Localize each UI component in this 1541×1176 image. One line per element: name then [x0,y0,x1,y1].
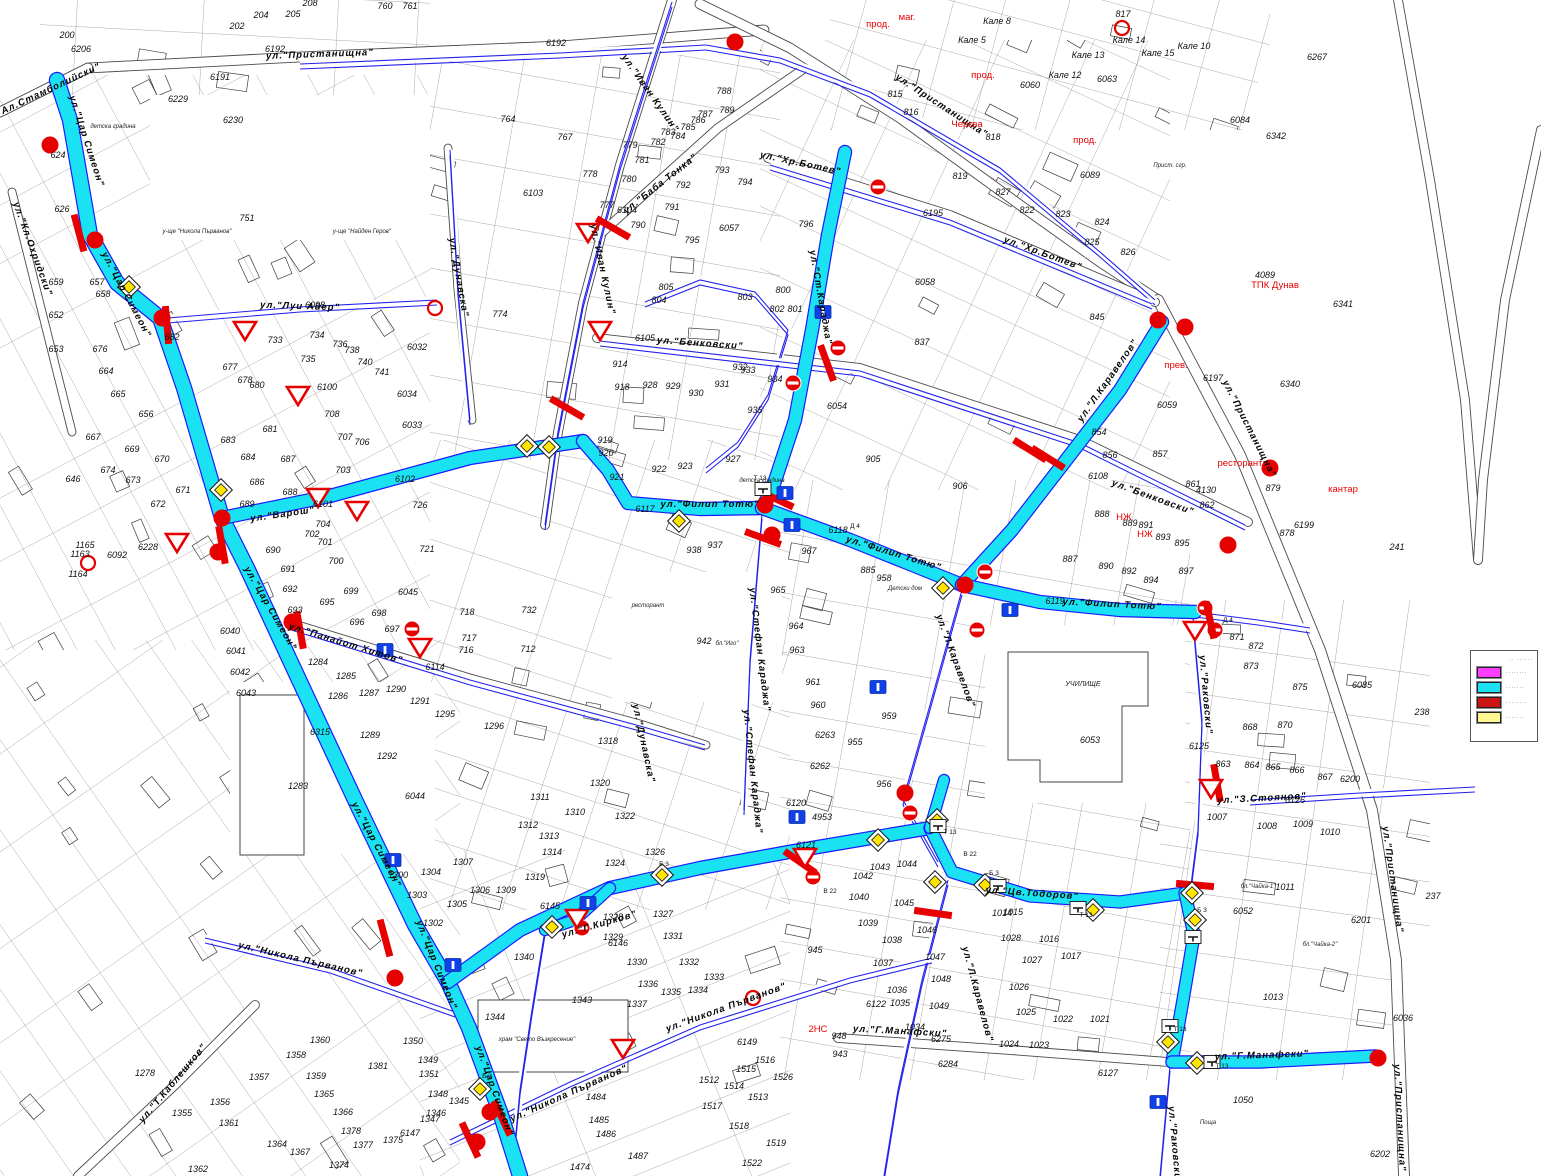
parcel-number: 873 [1243,661,1258,671]
parcel-number: 1367 [290,1147,311,1157]
red-annotation: 2НС [808,1024,827,1035]
arena-building [240,695,304,855]
parcel-number: 696 [349,617,364,627]
building-outline [424,1139,446,1162]
parcel-number: 6043 [236,688,256,698]
parcel-number: 1345 [449,1096,470,1106]
red-annotation: кантар [1328,484,1358,495]
parcel-number: 6063 [1097,74,1117,84]
legend-item: ········ [1477,697,1533,708]
parcel-number: 1349 [418,1055,438,1065]
building-outline [1043,152,1078,181]
building-outline [745,946,780,973]
parcel-number: 942 [696,636,711,646]
parcel-number: 684 [240,452,255,462]
parcel-number: 700 [328,556,343,566]
parcel-number: 708 [324,409,339,419]
parcel-number: 690 [265,545,280,555]
parcel-number: Кале 13 [1072,50,1105,60]
parcel-number: 6267 [1307,52,1328,62]
parcel-number: 857 [1152,449,1168,459]
parcel-number: 933 [740,365,755,375]
legend-item: ········ [1477,667,1533,678]
info-sign [789,811,805,824]
parcel-number: 864 [1244,760,1259,770]
parcel-number: 704 [315,519,330,529]
parcel-number: 6230 [223,115,243,125]
yield-sign [234,322,256,340]
parcel-number: 825 [1084,237,1100,247]
red-annotation: прод. [866,19,890,30]
parcel-number: 1347 [420,1114,441,1124]
parcel-number: 920 [598,448,613,458]
parcel-number: 701 [317,537,332,547]
info-sign [1002,604,1018,617]
parcel-number: 937 [707,540,723,550]
street-label: ул."Раковски" [1165,1105,1183,1176]
parcel-number: 671 [175,485,190,495]
parcel-number: 667 [85,432,101,442]
parcel-number: 1305 [447,899,468,909]
parcel-number: 624 [50,150,65,160]
parcel-number: 1324 [605,858,625,868]
parcel-number: 938 [686,545,701,555]
parcel-number: 6032 [407,342,427,352]
parcel-number: 1007 [1207,812,1228,822]
parcel-number: 1519 [766,1138,786,1148]
yield-sign [287,387,309,405]
parcel-number: 6199 [1294,520,1314,530]
parcel-number: 780 [621,174,636,184]
parcel-number: 6127 [1098,1068,1119,1078]
parcel-number: 657 [89,277,105,287]
parcel-number: 929 [665,381,680,391]
parcel-number: 905 [865,454,881,464]
parcel-number: 777 [599,200,615,210]
parcel-number: 1044 [897,859,917,869]
parcel-number: 890 [1098,561,1113,571]
building-outline [492,977,514,1000]
building-label: у-ще "Никола Първанов" [162,229,233,235]
parcel-number: 1320 [590,778,610,788]
parcel-number: 1514 [724,1081,744,1091]
parcel-number: 854 [1091,427,1106,437]
parcel-number: 779 [622,140,637,150]
parcel-number: 1015 [1003,907,1024,917]
parcel-number: 677 [222,362,238,372]
building-outline [62,827,78,844]
parcel-number: 703 [335,465,350,475]
parcel-number: 1286 [328,691,348,701]
parcel-number: 6118 [828,525,847,535]
parcel-number: 800 [775,285,790,295]
no-entry-sign [870,179,886,195]
parcel-number: 6197 [1203,373,1224,383]
highlighted-street [962,322,1162,585]
building-outline [193,704,209,721]
legend-item: ······· [1477,712,1533,723]
parcel-number: 1285 [336,671,357,681]
parcel-number: 6229 [168,94,188,104]
building-outline [602,67,620,78]
parcel-number: 1334 [688,985,708,995]
sign-code-label: Т 13 [1173,1026,1186,1033]
parcel-number: 934 [767,374,782,384]
parcel-number: 1047 [925,952,946,962]
parcel-number: 6202 [1370,1149,1390,1159]
parcel-number: Кале 10 [1178,41,1211,51]
parcel-number: 1318 [598,736,618,746]
parcel-number: 208 [301,0,317,8]
parcel-number: 914 [612,359,627,369]
parcel-number: 6114 [425,662,444,672]
parcel-number: 965 [770,585,786,595]
parcel-number: 1026 [1009,982,1029,992]
parcel-number: 790 [630,220,645,230]
no-entry-sign [404,621,420,637]
red-annotation: ресторант [1217,458,1263,469]
parcel-number: 930 [688,388,703,398]
parcel-number: 782 [650,137,665,147]
legend-swatch [1477,667,1501,678]
parcel-number: 1314 [542,847,562,857]
building-outline [806,790,833,811]
parcel-number: 673 [125,475,140,485]
building-outline [514,721,546,740]
parcel-number: 204 [252,10,268,20]
street-label: ул."Ал.Стамболийски" [0,61,103,127]
parcel-number: 1330 [627,957,647,967]
yield-sign [409,639,431,657]
parcel-number: 787 [697,109,713,119]
street-label: ул."Дунавска" [446,236,471,318]
building-outline [295,466,316,488]
parcel-number: 1025 [1016,1007,1037,1017]
junction-sign [1185,931,1201,944]
parcel-number: 689 [239,499,254,509]
red-annotation: прод. [971,70,995,81]
parcel-number: 6191 [210,72,230,82]
parcel-number: 665 [110,389,126,399]
legend-label: ········ [1506,700,1527,706]
building-outline [604,789,629,808]
parcel-number: 862 [1199,500,1214,510]
parcel-number: 6054 [827,401,847,411]
parcel-number: 6103 [523,188,543,198]
parcel-number: 699 [343,586,358,596]
building-label: детска градина [739,478,785,484]
parcel-number: 801 [787,304,802,314]
building-outline [271,257,292,279]
parcel-number: 1022 [1053,1014,1073,1024]
parcel-number: 726 [412,500,427,510]
yield-sign [166,534,188,552]
parcel-number: 778 [582,169,597,179]
parcel-number: 1284 [308,657,328,667]
parcel-number: 6105 [635,333,656,343]
parcel-number: 698 [371,608,386,618]
red-annotation: НЖ [1137,529,1153,540]
parcel-number: 760 [377,1,392,11]
parcel-number: 818 [985,132,1000,142]
red-marker-dot [1150,312,1167,329]
parcel-number: 796 [798,219,813,229]
parcel-number: 781 [634,155,649,165]
parcel-number: 1336 [638,979,658,989]
building-outline [512,668,530,686]
parcel-number: 1295 [435,709,456,719]
red-annotation: Черква [951,119,983,130]
parcel-number: 1291 [410,696,430,706]
parcel-number: 626 [54,204,69,214]
building-outline [670,257,694,274]
street-label: ул."Никола Първанов" [236,940,364,980]
sign-code-label: Б 3 [1197,907,1207,914]
parcel-number: 1344 [485,1012,505,1022]
sign-code-label: Т 13 [1079,912,1092,919]
parcel-number: 6042 [230,667,250,677]
parcel-number: 202 [228,21,244,31]
road-closed-bar [1012,437,1048,463]
parcel-number: 894 [1143,575,1158,585]
parcel-number: 1366 [333,1107,353,1117]
building-outline [785,924,811,938]
cadastral-map-canvas: 2002022042052086206619261926191622962307… [0,0,1541,1176]
sign-code-label: Д 4 [850,523,860,530]
red-marker-dot [87,232,104,249]
building-outline [1258,733,1285,747]
parcel-number: 895 [1174,538,1190,548]
parcel-number: 826 [1120,247,1135,257]
building-outline [371,310,394,336]
parcel-number: 1040 [849,892,869,902]
red-annotation: НЖ [1116,512,1132,523]
parcel-number: 6262 [810,761,830,771]
parcel-number: 761 [402,1,417,11]
parcel-number: 6201 [1351,915,1371,925]
building-outline [131,519,149,542]
parcel-number: 6206 [71,44,91,54]
parcel-number: 706 [354,437,369,447]
parcel-number: 1049 [929,1001,949,1011]
legend-swatch [1477,682,1501,693]
building-label: Поща [1200,1120,1217,1126]
parcel-number: 6145 [540,901,561,911]
parcel-number: 6120 [786,798,806,808]
parcel-number: 6100 [317,382,337,392]
parcel-number: 815 [887,89,903,99]
map-viewport[interactable]: 2002022042052086206619261926191622962307… [0,0,1541,1176]
parcel-number: 1163 [70,549,89,559]
parcel-number: 6340 [1280,379,1300,389]
parcel-number: 1303 [407,890,427,900]
parcel-number: 959 [881,711,896,721]
sign-code-label: Т 13 [1215,1063,1228,1070]
building-label: ресторант [631,603,665,609]
parcel-number: 1319 [525,872,545,882]
parcel-number: 682 [164,332,179,342]
building-outline [654,216,679,236]
parcel-number: 1518 [729,1121,749,1131]
parcel-number: 1487 [628,1151,649,1161]
building-outline [352,919,381,950]
parcel-number: 693 [287,605,302,615]
street-label: ул."Дунавска" [630,702,658,784]
sign-code-label: Т 13 [943,829,956,836]
parcel-number: 1332 [679,957,699,967]
red-annotation: прев. [1164,360,1187,371]
parcel-number: 4089 [1255,270,1275,280]
parcel-number: 6315 [310,727,331,737]
parcel-number: 238 [1413,707,1429,717]
parcel-number: 6102 [395,474,415,484]
parcel-number: 963 [789,645,804,655]
parcel-number: 872 [1248,641,1263,651]
parcel-number: 672 [150,499,165,509]
parcel-number: 1050 [1233,1095,1253,1105]
building-label: у-ще "Найден Геров" [332,228,392,235]
red-annotation: прод. [1073,135,1097,146]
parcel-number: 919 [597,435,612,445]
parcel-number: 879 [1265,483,1280,493]
sign-code-label: В 22 [963,851,977,858]
info-sign [784,519,800,532]
parcel-number: 6057 [719,223,740,233]
building-label: детска градина [90,124,136,130]
parcel-number: 735 [300,354,316,364]
parcel-number: 885 [860,565,876,575]
building-outline [8,466,32,495]
parcel-number: 1329 [603,932,623,942]
parcel-number: 967 [801,546,817,556]
parcel-number: 1485 [589,1115,610,1125]
parcel-number: 1351 [419,1069,439,1079]
building-outline [1155,108,1181,128]
parcel-number: Кале 15 [1142,48,1176,58]
parcel-number: 237 [1424,891,1441,901]
parcel-number: 1278 [135,1068,155,1078]
legend-label: ······· [1506,715,1525,721]
red-marker-dot [1177,319,1194,336]
parcel-number: 6200 [1340,774,1360,784]
parcel-number: 1028 [1001,933,1021,943]
building-label: УЧИЛИЩЕ [1064,681,1100,688]
parcel-number: 1046 [917,925,937,935]
parcel-number: 6052 [1233,906,1253,916]
building-label: бл."Чайка-2" [1303,941,1339,948]
parcel-number: 856 [1102,450,1117,460]
parcel-number: 870 [1277,720,1292,730]
parcel-number: 6228 [138,542,158,552]
yield-sign [1184,622,1206,640]
parcel-number: 656 [138,409,153,419]
parcel-number: 1036 [887,985,907,995]
yield-sign [346,502,368,520]
parcel-number: 6053 [1080,735,1100,745]
parcel-number: 1304 [421,867,441,877]
parcel-number: 6192 [546,38,566,48]
parcel-number: 837 [914,337,930,347]
parcel-number: 878 [1279,528,1294,538]
parcel-number: 718 [459,607,474,617]
parcel-number: 1337 [627,999,648,1009]
parcel-number: 734 [309,330,324,340]
parcel-number: 6059 [1157,400,1177,410]
parcel-number: 928 [642,380,657,390]
parcel-number: 6342 [1266,131,1286,141]
info-sign [445,959,461,972]
no-entry-sign [969,622,985,638]
parcel-number: 863 [1215,759,1230,769]
parcel-number: 868 [1242,722,1257,732]
parcel-number: 738 [344,345,359,355]
parcel-number: 669 [124,444,139,454]
parcel-number: 1474 [570,1162,590,1172]
parcel-number: 956 [876,779,891,789]
building-outline [38,633,66,663]
parcel-number: 717 [461,633,477,643]
parcel-number: 1361 [219,1118,239,1128]
parcel-number: 1355 [172,1108,193,1118]
building-outline [27,682,45,701]
parcel-number: 6263 [815,730,835,740]
parcel-number: 678 [237,375,252,385]
building-outline [141,777,170,809]
parcel-number: 676 [92,344,107,354]
building-outline [238,255,259,283]
info-sign [777,487,793,500]
parcel-number: 1358 [286,1050,306,1060]
parcel-number: 948 [831,1031,846,1041]
parcel-number: 764 [500,114,515,124]
parcel-number: 1048 [931,974,951,984]
parcel-number: 733 [267,335,282,345]
parcel-number: 875 [1292,682,1308,692]
info-sign [1150,1096,1166,1109]
parcel-number: 1307 [453,857,474,867]
building-label: Детски дом [887,586,922,592]
parcel-number: 1008 [1257,821,1277,831]
red-marker-dot [727,34,744,51]
parcel-number: 6117 [635,504,655,514]
parcel-number: 927 [725,454,741,464]
parcel-number: 4130 [1196,485,1216,495]
parcel-number: 6149 [737,1037,757,1047]
building-outline [800,605,833,624]
parcel-number: 695 [319,597,335,607]
parcel-number: 6060 [1020,80,1040,90]
parcel-number: 6041 [226,646,246,656]
parcel-number: 803 [737,292,752,302]
parcel-number: 1024 [999,1039,1019,1049]
parcel-number: 1164 [68,569,87,579]
map-legend: ·· ···································· [1470,650,1538,742]
parcel-number: 1348 [428,1089,448,1099]
info-sign [580,897,596,910]
parcel-number: 866 [1289,765,1304,775]
parcel-number: 1035 [890,998,911,1008]
parcel-number: 670 [154,454,169,464]
street-label: ул."Филип Тотю" [844,534,943,574]
parcel-number: 931 [714,379,729,389]
parcel-number: 687 [280,454,296,464]
parcel-number: 804 [651,295,666,305]
parcel-number: 707 [337,432,353,442]
parcel-number: 1283 [288,781,308,791]
building-outline [985,104,1018,128]
parcel-number: 845 [1089,312,1105,322]
parcel-number: 674 [100,465,115,475]
